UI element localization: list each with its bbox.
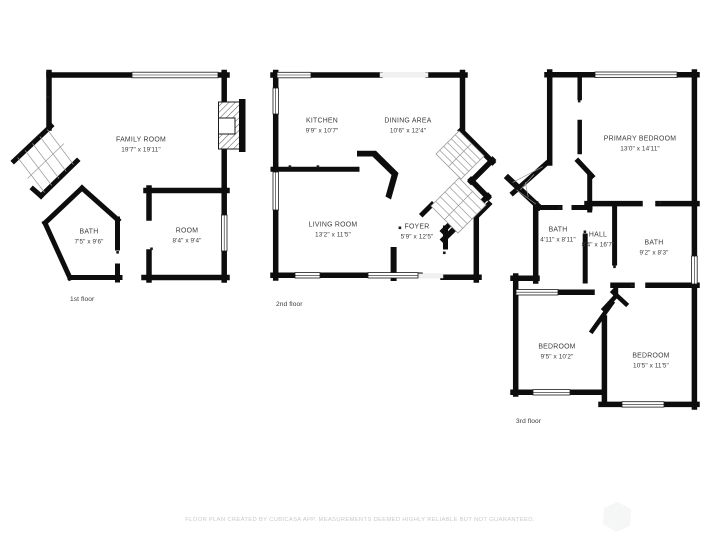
room-dims: 4'11" x 8'11" (540, 235, 575, 245)
floor1-windows (132, 72, 227, 251)
room-label-family-room: FAMILY ROOM 19'7" x 19'11" (116, 134, 166, 155)
room-label-bedroom-left: BEDROOM 9'5" x 10'2" (538, 341, 575, 362)
room-label-foyer: FOYER 5'9" x 12'5" (401, 221, 434, 242)
room-dims: 8'4" x 16'7" (582, 240, 615, 250)
room-name: BEDROOM (632, 350, 669, 361)
room-label-room-f1: ROOM 8'4" x 9'4" (172, 225, 201, 246)
room-label-bath-f3-right: BATH 9'2" x 8'3" (639, 237, 668, 258)
room-label-bedroom-right: BEDROOM 10'5" x 11'5" (632, 350, 669, 371)
room-dims: 9'9" x 10'7" (306, 126, 339, 136)
floor1-walls (14, 73, 227, 281)
room-name: BATH (540, 224, 575, 235)
floorplan-drawing (0, 0, 720, 540)
room-dims: 19'7" x 19'11" (116, 145, 166, 155)
room-dims: 7'5" x 9'6" (74, 237, 103, 247)
room-dims: 9'5" x 10'2" (538, 352, 575, 362)
room-name: FAMILY ROOM (116, 134, 166, 145)
floor-caption-1st: 1st floor (70, 296, 94, 303)
room-label-hall: HALL 8'4" x 16'7" (582, 229, 615, 250)
room-dims: 13'2" x 11'5" (309, 230, 358, 240)
fireplace-icon (219, 99, 246, 152)
room-name: KITCHEN (306, 115, 339, 126)
room-name: BEDROOM (538, 341, 575, 352)
room-dims: 10'5" x 11'5" (632, 361, 669, 371)
room-dims: 9'2" x 8'3" (639, 248, 668, 258)
room-name: DINING AREA (384, 115, 431, 126)
room-label-bath-f3-left: BATH 4'11" x 8'11" (540, 224, 575, 245)
room-name: ROOM (172, 225, 201, 236)
room-dims: 10'6" x 12'4" (384, 126, 431, 136)
room-name: HALL (582, 229, 615, 240)
room-name: FOYER (401, 221, 434, 232)
room-name: LIVING ROOM (309, 219, 358, 230)
room-dims: 5'9" x 12'5" (401, 232, 434, 242)
room-label-bath-f1: BATH 7'5" x 9'6" (74, 226, 103, 247)
room-dims: 13'0" x 14'11" (604, 144, 676, 154)
floor2-openings (380, 73, 443, 278)
room-label-living-room: LIVING ROOM 13'2" x 11'5" (309, 219, 358, 240)
floorplan-page: FAMILY ROOM 19'7" x 19'11" BATH 7'5" x 9… (0, 0, 720, 540)
footer-disclaimer: FLOOR PLAN CREATED BY CUBICASA APP. MEAS… (0, 517, 720, 523)
room-label-kitchen: KITCHEN 9'9" x 10'7" (306, 115, 339, 136)
room-label-primary-bedroom: PRIMARY BEDROOM 13'0" x 14'11" (604, 133, 676, 154)
room-dims: 8'4" x 9'4" (172, 236, 201, 246)
room-name: BATH (639, 237, 668, 248)
floor1-stairs-icon (18, 130, 74, 193)
room-name: PRIMARY BEDROOM (604, 133, 676, 144)
room-name: BATH (74, 226, 103, 237)
floor-caption-2nd: 2nd floor (276, 301, 303, 308)
room-label-dining-area: DINING AREA 10'6" x 12'4" (384, 115, 431, 136)
floor-caption-3rd: 3rd floor (516, 418, 541, 425)
